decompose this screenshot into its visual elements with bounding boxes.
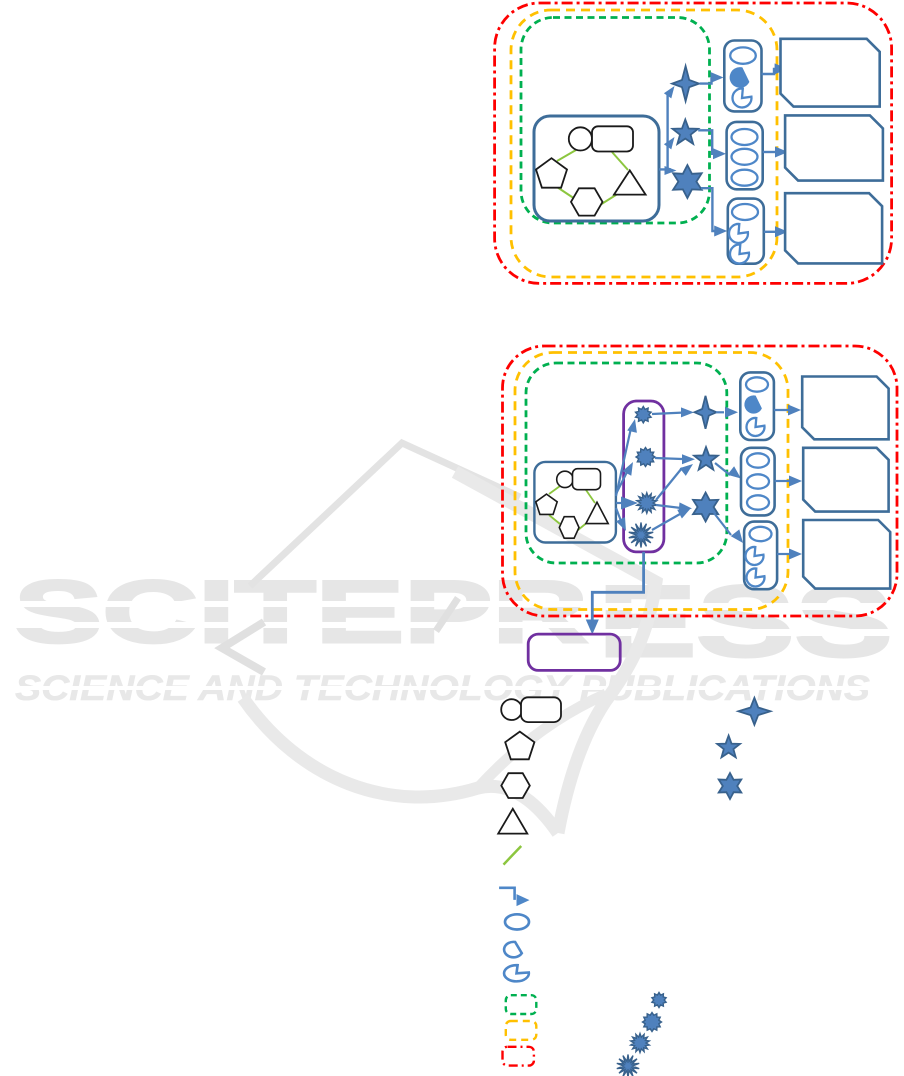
svg-text:SCITEPR: SCITEPR	[14, 562, 588, 661]
